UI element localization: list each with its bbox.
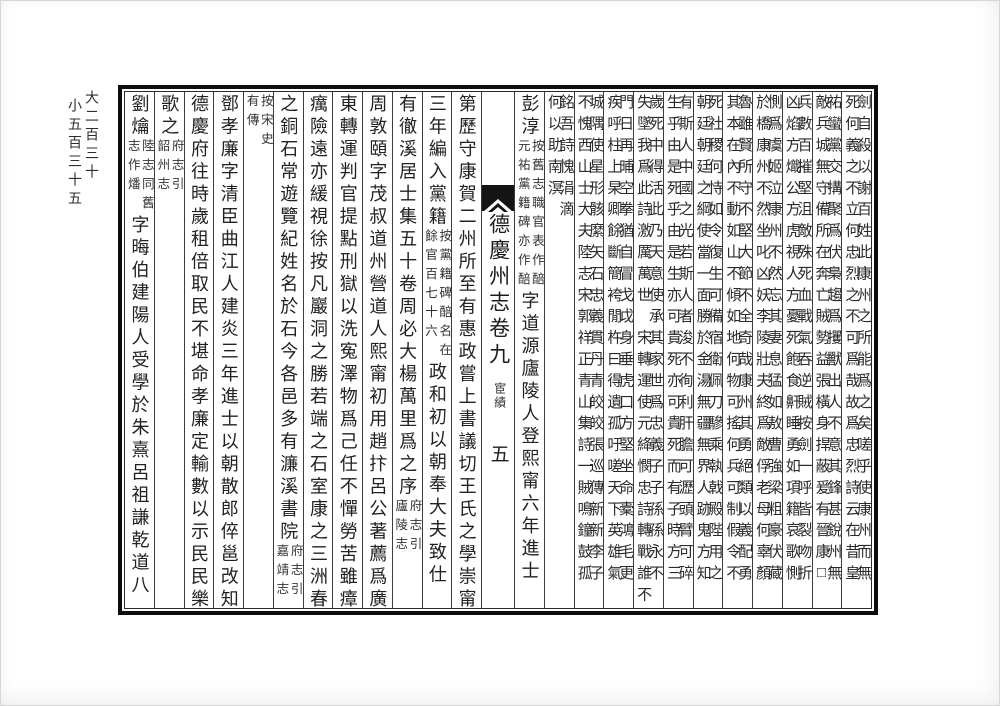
poem-line-left: 凶焰方熾公方虎視人方憂死飽食鼾睡勇如項籍哀歌惻 <box>784 94 799 586</box>
text-column-15: 三年編入黨籍按黨籍碑醅名在餘官百七十六政和初以朝奉大夫致仕 <box>422 92 452 608</box>
text-column-8: 歲死中得活此乃天意使承其家世爲忠義子子孫孫永不失墜我爲此詩激厲萬世 宋轉運使元絳… <box>633 92 663 608</box>
fishtail-chevron <box>492 207 504 212</box>
column-text: 政和初以朝奉大夫致仕 <box>428 362 446 587</box>
text-column-2: 祐蠻黨交搆聚爲伏梟趨爲攫獸出人不意其鋒甚銳州無敵兵城無守備所在奔亡賊勢益張橫身捍… <box>812 92 842 608</box>
column-text: 有徹溪居士集五十卷周必大楊萬里爲之序 <box>398 94 416 499</box>
text-column-4: 惻爲虞姬泣康州不然忘其妻息猛如敖曹強梁粗豪伏藏於橋康州不然坐叱凶妖李陵壯夫終爲敵… <box>752 92 782 608</box>
poem-line-left: 疾呼柱上杲卿餘斷簡袴閒杵曰得遺孤吁嗟天下英雄氣 <box>605 94 620 586</box>
column-text: 三年編入黨籍 <box>428 94 446 229</box>
text-column-23: 德慶府往時歲租倍取民不堪命孝廉定輸數以示民民樂 <box>184 92 214 608</box>
column-text: 德慶府往時歲租倍取民不堪命孝廉定輸數以示民民樂 <box>190 94 208 608</box>
text-column-10: 城隅使星形骸縻矢石忠義貫丹青皎皎張巡傳新新李子不愧西山士大夫陸志宋郭祥正青山集詩… <box>574 92 604 608</box>
column-text: 鄧孝廉字清臣曲江人建炎三年進士以朝散郎倅邕改知 <box>220 94 238 608</box>
column-text: 歌之 <box>160 94 178 139</box>
column-text: 第歷守康賀二州所至有惠政嘗上書議切王氏之學崇甯 <box>458 94 476 608</box>
interlinear-note-right: 府志引 <box>170 139 183 196</box>
spine-column: 德慶州志卷九宦績五 <box>481 92 514 608</box>
interlinear-note-right: 按舊志職官表作醅 <box>530 139 543 291</box>
text-column-17: 周敦頤字茂叔道州營道人熙甯初用趙抃呂公著薦爲廣 <box>362 92 392 608</box>
column-text: 周敦頤字茂叔道州營道人熙甯初用趙抃呂公著薦爲廣 <box>368 94 386 608</box>
volume-title: 德慶州志卷九 <box>488 213 509 369</box>
interlinear-note-left: 嘉靖志 <box>275 544 288 601</box>
column-text: 彭淳 <box>521 94 539 139</box>
poem-line-left: 死何義之不立何忠烈之不可爲哉故爲忠烈詩云在昔皇 <box>843 94 858 586</box>
section-title: 宦績 <box>494 382 506 410</box>
text-column-9: 門日再晡空拳猶自冒戈戉身垂虎口方堅坐命橐鴻毛更疾呼柱上杲卿餘斷簡袴閒杵曰得遺孤吁… <box>603 92 633 608</box>
page-frame: 劍自殺以謝百姓此康州之所能爲之矣嗟乎使康州而無死何義之不立何忠烈之不可爲哉故爲忠… <box>118 85 878 615</box>
interlinear-note-left: 有傳 <box>245 94 258 132</box>
text-column-3: 兵數百摧堅沮敵殊死血戰氣吞逆賊按劍一呼皆裂吻折凶焰方熾公方虎視人方憂死飽食鼾睡勇… <box>782 92 812 608</box>
text-column-19: 癘險遠亦緩視徐按凡巖洞之勝若端之石室康之三洲春 <box>303 92 333 608</box>
text-column-16: 有徹溪居士集五十卷周必大楊萬里爲之序府志引廬陵志 <box>392 92 422 608</box>
interlinear-note-left: 韶州志 <box>156 139 169 196</box>
column-text: 之銅石常遊覽紀姓名於石今各邑多有濂溪書院 <box>279 94 297 544</box>
interlinear-note-left: 元祐黨籍碑亦作醅 <box>516 139 529 291</box>
poem-line-left: 於橋康州不然坐叱凶妖李陵壯夫終爲敵俘老母何辜顏 <box>754 94 769 586</box>
text-column-25: 劉爚陸志同舊志作燔字晦伯建陽人受學於朱熹呂祖謙乾道八 <box>125 92 154 608</box>
text-column-6: 死社稷何恃如令復生可備宿衛佩刀驂乘執戟殿陛用之朝廷朝廷之綱使當一面勝於金湯無疆無… <box>693 92 723 608</box>
text-columns: 劍自殺以謝百姓此康州之所能爲之矣嗟乎使康州而無死何義之不立何忠烈之不可爲哉故爲忠… <box>125 92 871 608</box>
column-text: 字晦伯建陽人受學於朱熹呂祖謙乾道八 <box>131 215 149 598</box>
interlinear-note-right: 按宋史 <box>259 94 272 151</box>
poem-line-left: 生乎由是死乎由是生亦可貴死亦可貴死而有子時方三 <box>665 94 680 586</box>
interlinear-note-right: 陸志同舊 <box>140 139 153 215</box>
text-column-24: 歌之府志引韶州志 <box>154 92 184 608</box>
interlinear-note-right: 府志引 <box>289 544 302 601</box>
inner-frame: 劍自殺以謝百姓此康州之所能爲之矣嗟乎使康州而無死何義之不立何忠烈之不可爲哉故爲忠… <box>124 91 872 609</box>
interlinear-note-right: 府志引 <box>408 499 421 556</box>
poem-line-left: 其本在內不動如山不傾如地何物可搖何兵可制假令不 <box>724 94 739 586</box>
poem-line-left: 不愧西山士大夫陸志宋郭祥正青山集詩一賊鳴鐘鼓孤 <box>576 94 591 586</box>
interlinear-note-left: 廬陵志 <box>394 499 407 556</box>
margin-note-left-line: 小五百三十五 <box>66 98 80 209</box>
poem-line-left: 失墜我爲此詩激厲萬世 宋轉運使元絳憫忠詩轉戰誰不 <box>635 94 650 608</box>
column-text: 癘險遠亦緩視徐按凡巖洞之勝若端之石室康之三洲春 <box>309 94 327 608</box>
interlinear-note-left: 志作燔 <box>126 139 139 196</box>
text-column-21: 按宋史有傳 <box>243 92 273 608</box>
text-column-14: 第歷守康賀二州所至有惠政嘗上書議切王氏之學崇甯 <box>451 92 481 608</box>
poem-line-left: 敵兵城無守備所在奔亡賊勢益張橫身捍蔽爰有晉康□ <box>814 94 829 587</box>
poem-line-left: 何以助南溟 <box>546 94 561 201</box>
text-column-11: 銘吾詩愧涓滴何以助南溟 <box>544 92 574 608</box>
column-text: 東轉運判官提點刑獄以洗寃澤物爲己任不憚勞苦雖瘴 <box>339 94 357 608</box>
text-column-20: 之銅石常遊覽紀姓名於石今各邑多有濂溪書院府志引嘉靖志 <box>273 92 303 608</box>
text-column-22: 鄧孝廉字清臣曲江人建炎三年進士以朝散郎倅邕改知 <box>213 92 243 608</box>
scanned-page: 大二百三十 小五百三十五 劍自殺以謝百姓此康州之所能爲之矣嗟乎使康州而無死何義之… <box>0 0 1000 706</box>
page-number: 五 <box>489 444 508 463</box>
column-text: 字道源廬陵人登熙甯六年進士 <box>521 291 539 584</box>
text-column-5: 魯雖賢所守不堅大節不全奇哉康州其勇絕類以義配勇其本在內不動如山不傾如地何物可搖何… <box>722 92 752 608</box>
poem-line-left: 朝廷朝廷之綱使當一面勝於金湯無疆無界人跡鬼方知 <box>695 94 710 586</box>
column-text: 劉爚 <box>131 94 149 139</box>
text-column-7: 有斯人中國之光若斯人者浚不徇利肝膽可瀝頭臂可碎生乎由是死乎由是生亦可貴死亦可貴死… <box>663 92 693 608</box>
interlinear-note-left: 餘官百七十六 <box>424 229 437 343</box>
text-column-1: 劍自殺以謝百姓此康州之所能爲之矣嗟乎使康州而無死何義之不立何忠烈之不可爲哉故爲忠… <box>841 92 871 608</box>
margin-note-right-line: 大二百三十 <box>83 90 97 183</box>
margin-character-count-note: 大二百三十 小五百三十五 <box>66 88 100 248</box>
text-column-12: 彭淳按舊志職官表作醅元祐黨籍碑亦作醅字道源廬陵人登熙甯六年進士 <box>514 92 544 608</box>
fishtail-icon <box>482 185 514 211</box>
interlinear-note-right: 按黨籍碑醅名在 <box>438 229 451 362</box>
text-column-18: 東轉運判官提點刑獄以洗寃澤物爲己任不憚勞苦雖瘴 <box>332 92 362 608</box>
